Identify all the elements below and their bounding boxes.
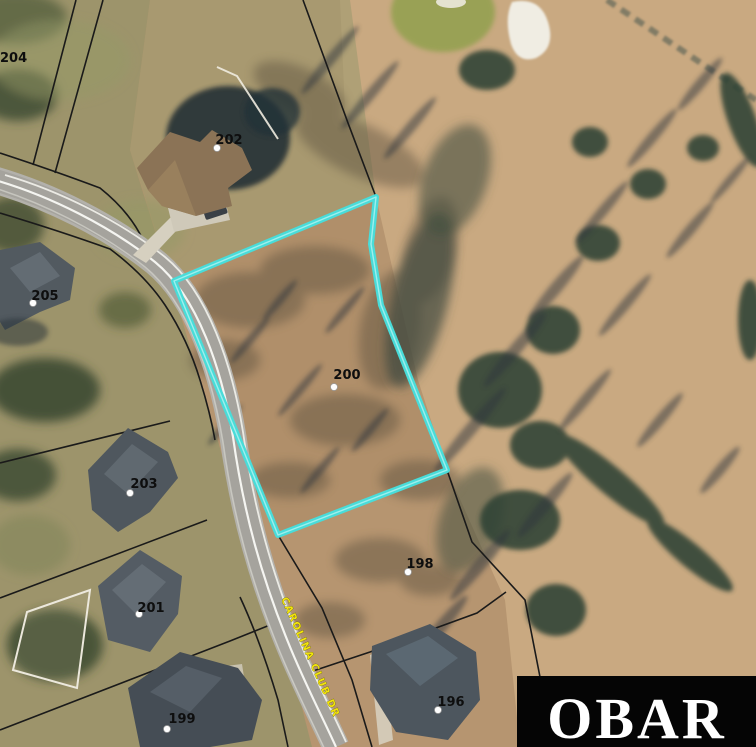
lot-marker-200 [331, 384, 338, 391]
obar-logo-text: OBAR [547, 686, 727, 747]
lot-label-198: 198 [406, 557, 433, 572]
lot-label-205: 205 [31, 289, 58, 304]
lot-label-201: 201 [137, 601, 164, 616]
lot-label-199: 199 [168, 712, 195, 727]
lot-label-200: 200 [333, 368, 360, 383]
aerial-map-canvas: 204 202 205 203 201 199 200 198 196 CARO… [0, 0, 756, 747]
lot-label-196: 196 [437, 695, 464, 710]
aerial-map: 204 202 205 203 201 199 200 198 196 CARO… [0, 0, 756, 747]
obar-logo: OBAR [517, 676, 756, 747]
lot-label-203: 203 [130, 477, 157, 492]
lot-label-202: 202 [215, 133, 242, 148]
lot-label-204: 204 [0, 51, 27, 66]
